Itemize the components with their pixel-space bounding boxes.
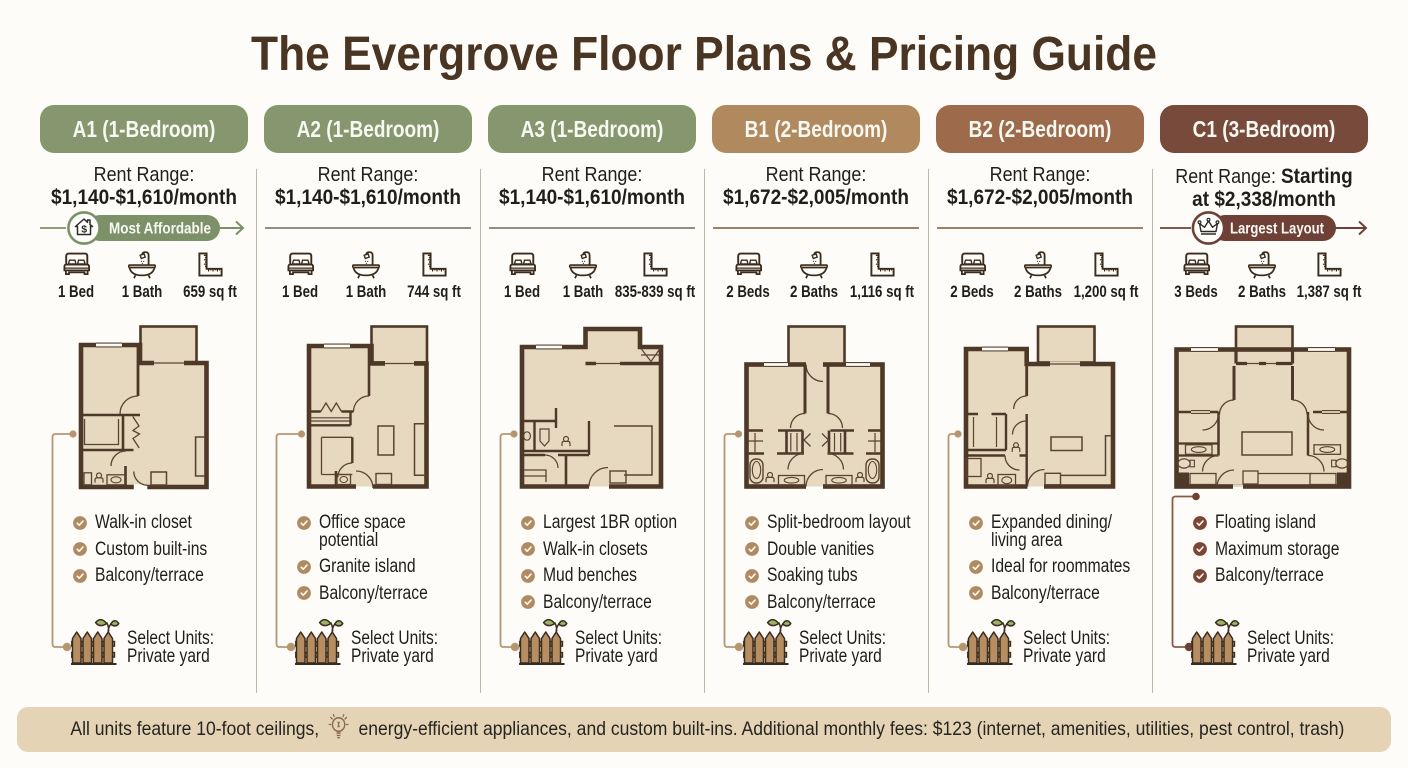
svg-text:Most Affordable: Most Affordable bbox=[109, 221, 211, 238]
svg-text:Largest Layout: Largest Layout bbox=[1230, 221, 1325, 238]
svg-text:$: $ bbox=[81, 224, 87, 236]
